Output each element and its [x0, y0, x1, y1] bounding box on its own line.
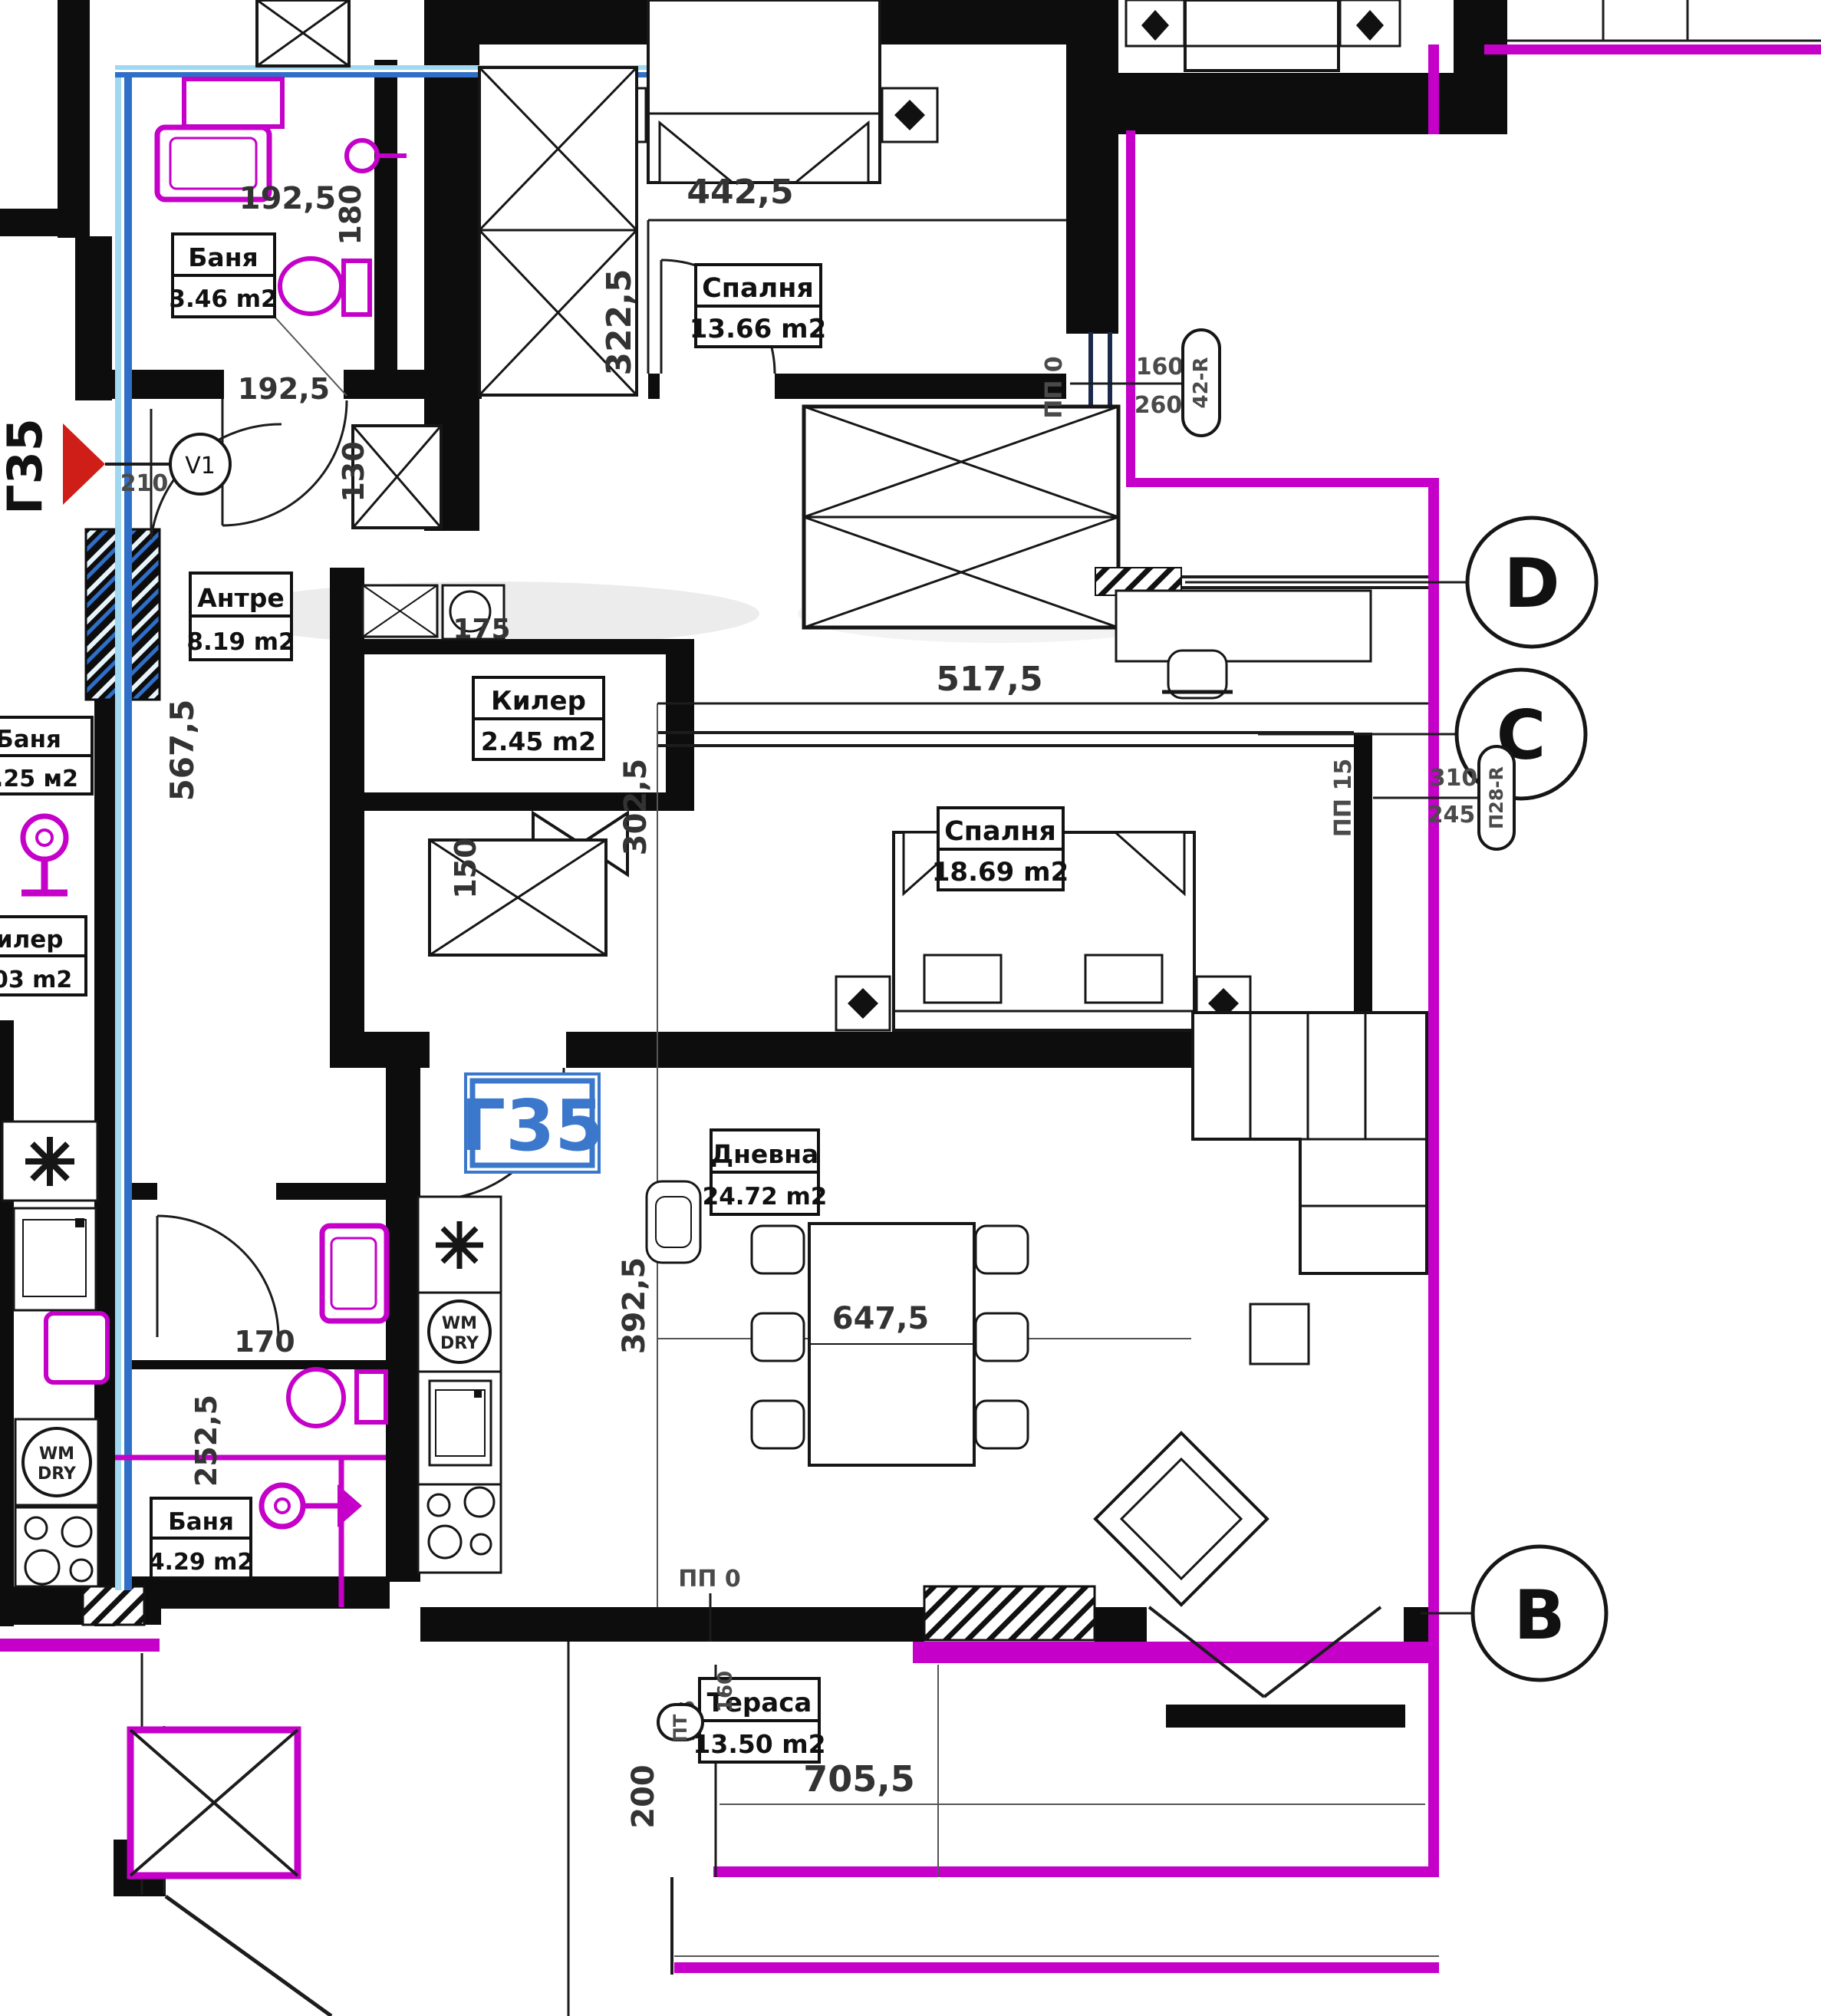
- dim-hall-length: 567,5: [163, 700, 201, 802]
- bottom-left-structures: [130, 1730, 298, 1876]
- sink-icon: [46, 1313, 107, 1382]
- bath2-door-arc: [157, 1216, 278, 1337]
- wardrobe-hall: [353, 426, 504, 639]
- room-label-terrace: Тераса 13.50 m2: [693, 1678, 825, 1762]
- svg-text:ПП 0: ПП 0: [1041, 356, 1068, 419]
- svg-text:24.72 m2: 24.72 m2: [703, 1183, 828, 1211]
- room-label-living: Дневна 24.72 m2: [703, 1130, 828, 1214]
- fridge-icon: [25, 1137, 74, 1186]
- room-label-bedroom1: Спалня 13.66 m2: [690, 265, 826, 347]
- svg-text:3.46 m2: 3.46 m2: [169, 285, 277, 313]
- room-label-neighbor-closet: Килер 1.03 m2: [0, 917, 86, 995]
- dim-bedroom1-width: 442,5: [687, 173, 793, 212]
- dim-bedroom2-length: 302,5: [618, 759, 654, 856]
- dim-closet-width: 175: [453, 614, 510, 645]
- wardrobe-corridor: [804, 407, 1118, 628]
- grid-marker-d: D: [1467, 518, 1596, 647]
- unit-entry-tag: Г35: [0, 418, 53, 515]
- svg-text:3.25 м2: 3.25 м2: [0, 766, 78, 792]
- room-label-neighbor-bath: Баня 3.25 м2: [0, 717, 92, 794]
- dim-entry-width: 210: [120, 470, 169, 497]
- svg-text:160: 160: [1136, 354, 1184, 380]
- bath2-fixtures: [262, 1226, 387, 1527]
- sofa: [1193, 1013, 1427, 1273]
- svg-text:42-R: 42-R: [1190, 357, 1213, 409]
- unit-code-box: Г35: [461, 1074, 604, 1172]
- svg-text:D: D: [1503, 544, 1559, 623]
- toilet-icon: [280, 259, 341, 314]
- dim-bath2-length: 252,5: [189, 1395, 223, 1487]
- svg-text:Килер: Килер: [0, 926, 63, 954]
- svg-text:18.69 m2: 18.69 m2: [932, 857, 1069, 888]
- svg-text:2.45 m2: 2.45 m2: [481, 726, 596, 756]
- shower-icon: [262, 1484, 362, 1527]
- svg-text:13.66 m2: 13.66 m2: [690, 314, 826, 344]
- vent-marker-label: V1: [185, 453, 216, 479]
- grid-marker-b: B: [1473, 1547, 1606, 1680]
- dim-terrace-length: 200: [626, 1764, 661, 1829]
- entry-arrow-icon: [63, 423, 105, 505]
- terrace-door-threshold: [1166, 1705, 1405, 1728]
- svg-text:B: B: [1513, 1576, 1565, 1655]
- svg-text:Дневна: Дневна: [711, 1139, 819, 1169]
- wall-hatched-window: [83, 1586, 144, 1625]
- kitchen-unit: WM DRY: [418, 1197, 501, 1573]
- dryer-label: DRY: [38, 1464, 77, 1484]
- floor-plan-page: WM DRY: [0, 0, 1821, 2016]
- dim-bath2-width: 170: [234, 1325, 295, 1359]
- dryer-label: DRY: [440, 1334, 479, 1353]
- terrace-parapet-hatch: [924, 1586, 1095, 1640]
- dim-nook-height: 130: [337, 441, 370, 502]
- svg-text:Спалня: Спалня: [944, 816, 1056, 847]
- towel-rail-icon: [347, 140, 377, 171]
- svg-text:4.29 m2: 4.29 m2: [149, 1549, 254, 1576]
- room-label-hall: Антре 8.19 m2: [186, 573, 295, 660]
- svg-text:Спалня: Спалня: [702, 273, 814, 304]
- dim-living-length: 392,5: [617, 1257, 652, 1355]
- svg-text:Антре: Антре: [197, 583, 284, 613]
- unit-code: Г35: [461, 1085, 604, 1167]
- neighbor-shower-icon: [21, 816, 68, 893]
- dim-offset-150: 150: [449, 838, 482, 898]
- neighbor-bed: [1126, 0, 1400, 71]
- svg-text:8.19 m2: 8.19 m2: [186, 628, 295, 656]
- svg-text:Баня: Баня: [0, 726, 61, 753]
- dim-bedroom1-height: 322,5: [600, 268, 639, 375]
- room-label-closet: Килер 2.45 m2: [473, 677, 604, 759]
- neighbor-kitchen: WM DRY: [2, 1122, 107, 1586]
- dim-living-width: 647,5: [832, 1301, 930, 1336]
- toilet-icon: [288, 1369, 344, 1426]
- svg-text:245: 245: [1427, 802, 1476, 828]
- floor-plan-drawing: WM DRY: [0, 0, 1821, 2016]
- dim-terrace-width: 705,5: [803, 1758, 915, 1800]
- oven-icon: [430, 1381, 491, 1465]
- svg-text:ПП 15: ПП 15: [1330, 759, 1357, 837]
- svg-text:Килер: Килер: [491, 686, 586, 716]
- room-label-bedroom2: Спалня 18.69 m2: [932, 808, 1069, 890]
- dim-nook-width: 192,5: [238, 372, 330, 406]
- svg-text:1.03 m2: 1.03 m2: [0, 967, 72, 993]
- room-label-bath1: Баня 3.46 m2: [169, 234, 277, 317]
- washer-label: WM: [39, 1444, 74, 1464]
- svg-text:ПТ: ПТ: [670, 1714, 691, 1742]
- svg-text:13.50 m2: 13.50 m2: [693, 1729, 825, 1759]
- fridge-icon: [436, 1221, 483, 1269]
- dim-bath1-height: 180: [334, 184, 367, 245]
- window-marker-pp0-bottom: ПП 0: [678, 1566, 741, 1593]
- cabinet-icon: [184, 79, 282, 127]
- side-table: [1250, 1304, 1309, 1364]
- washer-label: WM: [442, 1314, 477, 1333]
- dim-bath1-width: 192,5: [239, 181, 337, 216]
- room-label-bath2: Баня 4.29 m2: [149, 1498, 254, 1578]
- bath1-door-arc: [222, 400, 347, 525]
- desk-bedroom2: [1116, 591, 1371, 698]
- svg-text:260: 260: [1134, 392, 1183, 419]
- coffee-table: [1095, 1433, 1267, 1605]
- svg-text:310: 310: [1430, 765, 1478, 792]
- wardrobe-top-left: [257, 0, 349, 66]
- svg-text:160: 160: [714, 1671, 737, 1712]
- svg-text:Баня: Баня: [168, 1508, 234, 1536]
- svg-text:Баня: Баня: [188, 242, 258, 272]
- dim-bedroom2-width: 517,5: [936, 660, 1042, 699]
- svg-text:П28-R: П28-R: [1486, 766, 1507, 829]
